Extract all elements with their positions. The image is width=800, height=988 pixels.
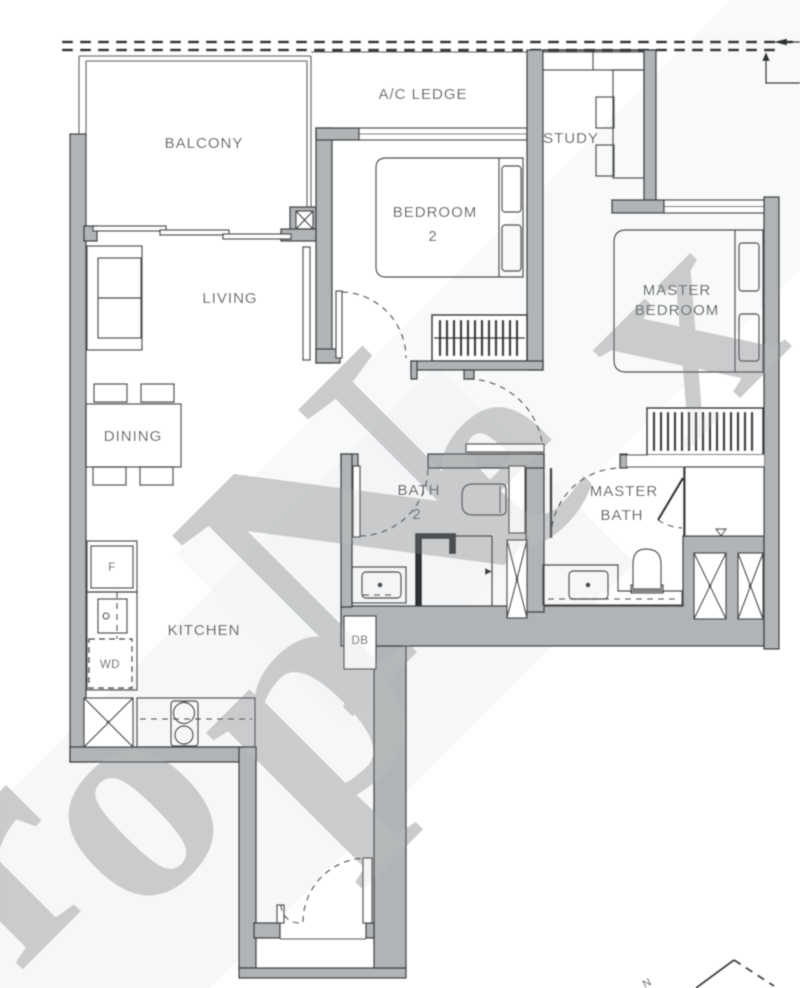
svg-text:A/C LEDGE: A/C LEDGE <box>378 86 467 103</box>
svg-text:STUDY: STUDY <box>543 130 599 147</box>
svg-text:F: F <box>108 562 116 574</box>
svg-text:BALCONY: BALCONY <box>165 135 244 152</box>
svg-text:WD: WD <box>100 659 120 671</box>
svg-text:LIVING: LIVING <box>202 290 257 307</box>
svg-text:BEDROOM: BEDROOM <box>393 204 478 221</box>
svg-text:2: 2 <box>428 228 437 245</box>
